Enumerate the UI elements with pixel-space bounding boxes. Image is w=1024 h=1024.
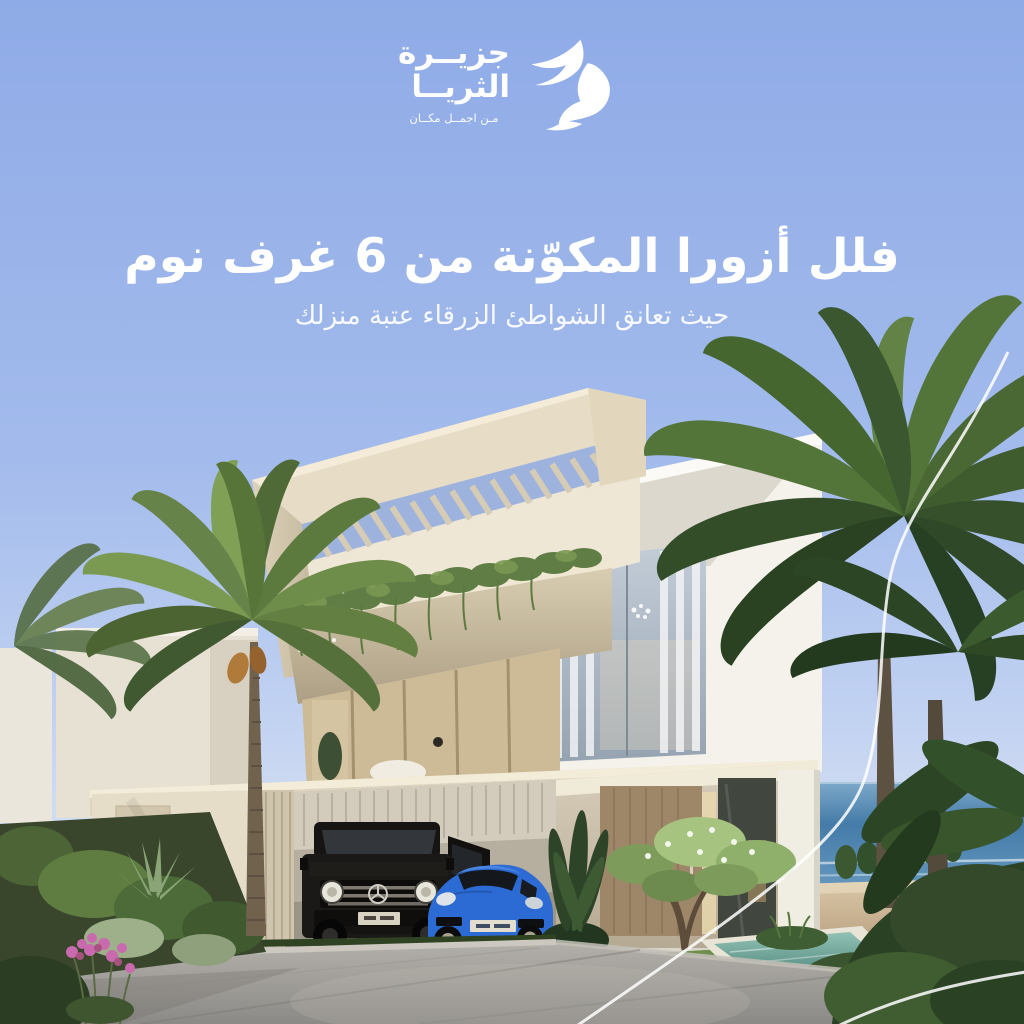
- brand-name-line1: جزيــرة: [398, 36, 510, 70]
- decor-vase: [433, 737, 443, 747]
- brand-name-line2: الثريــا: [411, 70, 510, 104]
- villa-scene: [0, 0, 1024, 1024]
- brand-tagline: مـن اجمــل مكــان: [409, 111, 498, 125]
- subheadline: حيث تعانق الشواطئ الزرقاء عتبة منزلك: [0, 301, 1024, 331]
- brand-logo-text: جزيــرة الثريــا مـن اجمــل مكــان: [398, 36, 510, 125]
- brand-logo: جزيــرة الثريــا مـن اجمــل مكــان: [398, 36, 626, 132]
- pool-island-plants: [756, 926, 828, 950]
- indoor-plant: [318, 732, 342, 780]
- dove-bird-icon: [522, 38, 626, 132]
- headline: فلل أزورا المكوّنة من 6 غرف نوم: [0, 229, 1024, 284]
- real-estate-ad-poster: جزيــرة الثريــا مـن اجمــل مكــان فلل أ…: [0, 0, 1024, 1024]
